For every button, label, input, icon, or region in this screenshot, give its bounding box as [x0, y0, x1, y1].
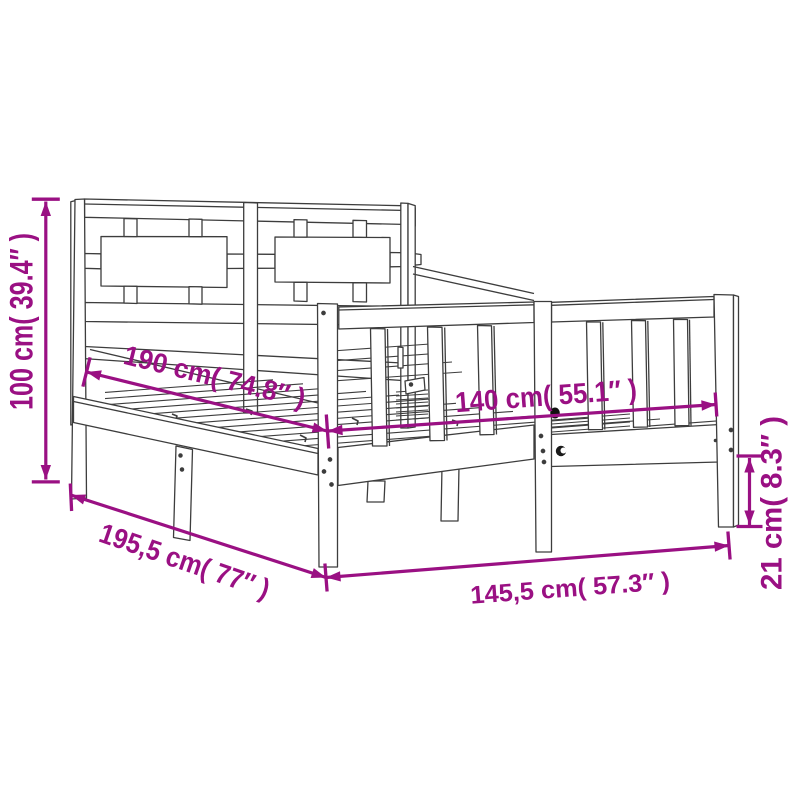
svg-text:100 cm( 39.4″ ): 100 cm( 39.4″ ) [4, 233, 40, 410]
svg-text:21 cm( 8.3″ ): 21 cm( 8.3″ ) [756, 416, 789, 590]
